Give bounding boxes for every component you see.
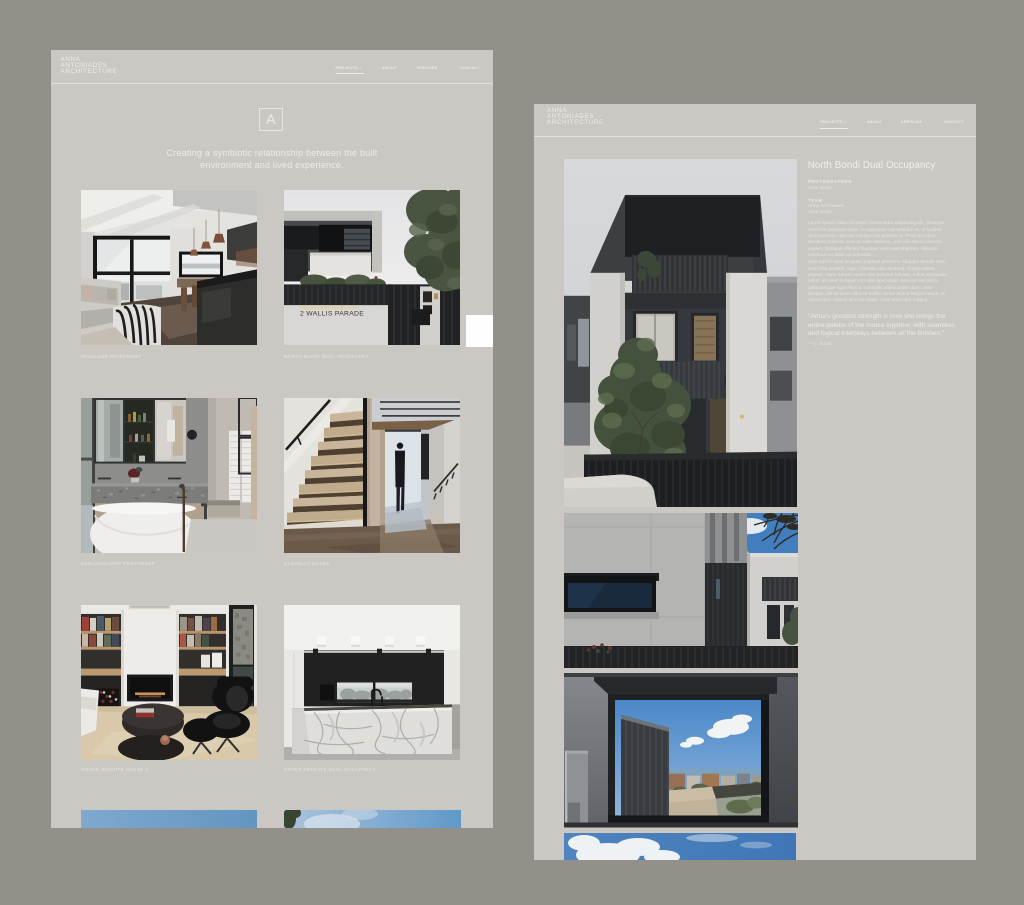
svg-text:2 WALLIS PARADE: 2 WALLIS PARADE <box>300 311 364 318</box>
